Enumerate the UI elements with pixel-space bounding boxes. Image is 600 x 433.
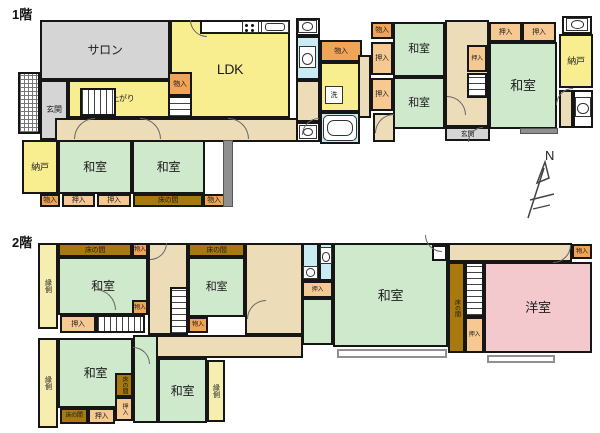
floor-title-1: 1階 [12,8,32,21]
oshiire-nw: 押入 [60,315,96,333]
balcony-east [487,355,555,363]
washitsu-big: 和室 [333,243,448,347]
engawa-se: 縁側 [207,360,225,422]
oshiire-c1: 押入 [115,397,133,421]
washitsu-n2: 和室 [188,257,245,317]
basin-icon [298,20,317,33]
stairs-2f-west [96,315,145,333]
nando-east: 納戸 [559,34,593,88]
washitsu-east: 和室 [489,42,557,129]
stairs-koagari [80,88,116,116]
hall-mid-pocket [373,113,395,142]
monoire-mid2f: 物入 [188,317,208,333]
stairs-1f-east [467,73,487,98]
floor-title-2: 2階 [12,236,32,249]
hall-2f-center [245,243,303,335]
monoire-sw: 物入 [40,194,60,207]
stairs-2f-mid [170,287,188,335]
hall-sanitary [296,80,320,122]
floor-plan: N 1階サロン玄関LDK小上がり物入納戸和室和室物入押入押入床の間物入物入物入押… [0,0,600,433]
tokonoma-s: 床の間 [60,408,88,424]
washitsu-annex [302,298,333,345]
hall-ne [559,90,573,128]
corridor-2f [148,335,303,358]
monoire-ldk: 物入 [168,72,192,96]
tokonoma-nw: 床の間 [58,243,132,257]
entrance-porch [18,72,40,134]
basin-icon [566,18,588,31]
stairs-2f-east [465,262,484,317]
wall-sw [223,140,233,207]
oshiire-sw2: 押入 [97,194,131,207]
compass-north-label: N [545,148,554,163]
oshiire-s: 押入 [88,408,115,424]
basin-icon [299,125,317,139]
monoire-mid: 物入 [320,40,362,62]
balcony-center [337,349,447,358]
oshiire-c2f: 押入 [302,281,333,298]
oshiire-sw1: 押入 [62,194,95,207]
oshiire-east-s: 押入 [467,45,487,72]
oshiire-col1: 押入 [371,42,393,75]
monoire-sw2: 物入 [203,194,225,207]
sink-icon [261,21,289,33]
wash-icon: 洗 [325,86,343,104]
oshiire-east2f: 押入 [465,317,484,353]
washitsu-mid1: 和室 [393,22,445,77]
tokonoma-c1: 床の間 [115,373,133,397]
monoire-nw1: 物入 [132,243,148,257]
hall-mid-v [358,55,371,118]
engawa-nw: 縁側 [38,243,58,329]
oshiire-ne2: 押入 [522,22,556,42]
toilet-icon [299,46,316,68]
washitsu-sw2: 和室 [132,140,205,194]
stairs-1f-west [168,96,192,118]
double-door [432,245,447,261]
tokonoma-sw: 床の間 [133,194,203,207]
washitsu-mid2: 和室 [393,77,445,129]
washitsu-se-a [133,335,158,423]
toilet-icon [320,247,332,264]
monoire-nw2: 物入 [132,300,148,315]
oshiire-col2: 押入 [371,78,393,111]
corridor-1f [55,118,320,142]
tub-icon [323,115,357,141]
washitsu-sw1: 和室 [58,140,132,194]
stove-icon [242,21,259,33]
nando-west: 納戸 [22,140,58,194]
step-east [520,128,558,134]
monoire-col: 物入 [371,22,393,39]
genkan-east: 玄関 [445,127,490,141]
compass-icon: N [518,148,568,223]
oshiire-ne1: 押入 [489,22,522,42]
toilet-icon [575,97,591,117]
engawa-sw: 縁側 [38,338,58,428]
basin-icon [303,266,318,279]
tokonoma-east: 床の間 [448,262,465,353]
monoire-ne2f: 物入 [572,244,592,259]
tokonoma-n2: 床の間 [188,243,245,257]
youshitsu: 洋室 [484,262,592,353]
salon: サロン [40,20,170,80]
washitsu-se: 和室 [158,358,207,423]
landing-east [448,243,572,262]
